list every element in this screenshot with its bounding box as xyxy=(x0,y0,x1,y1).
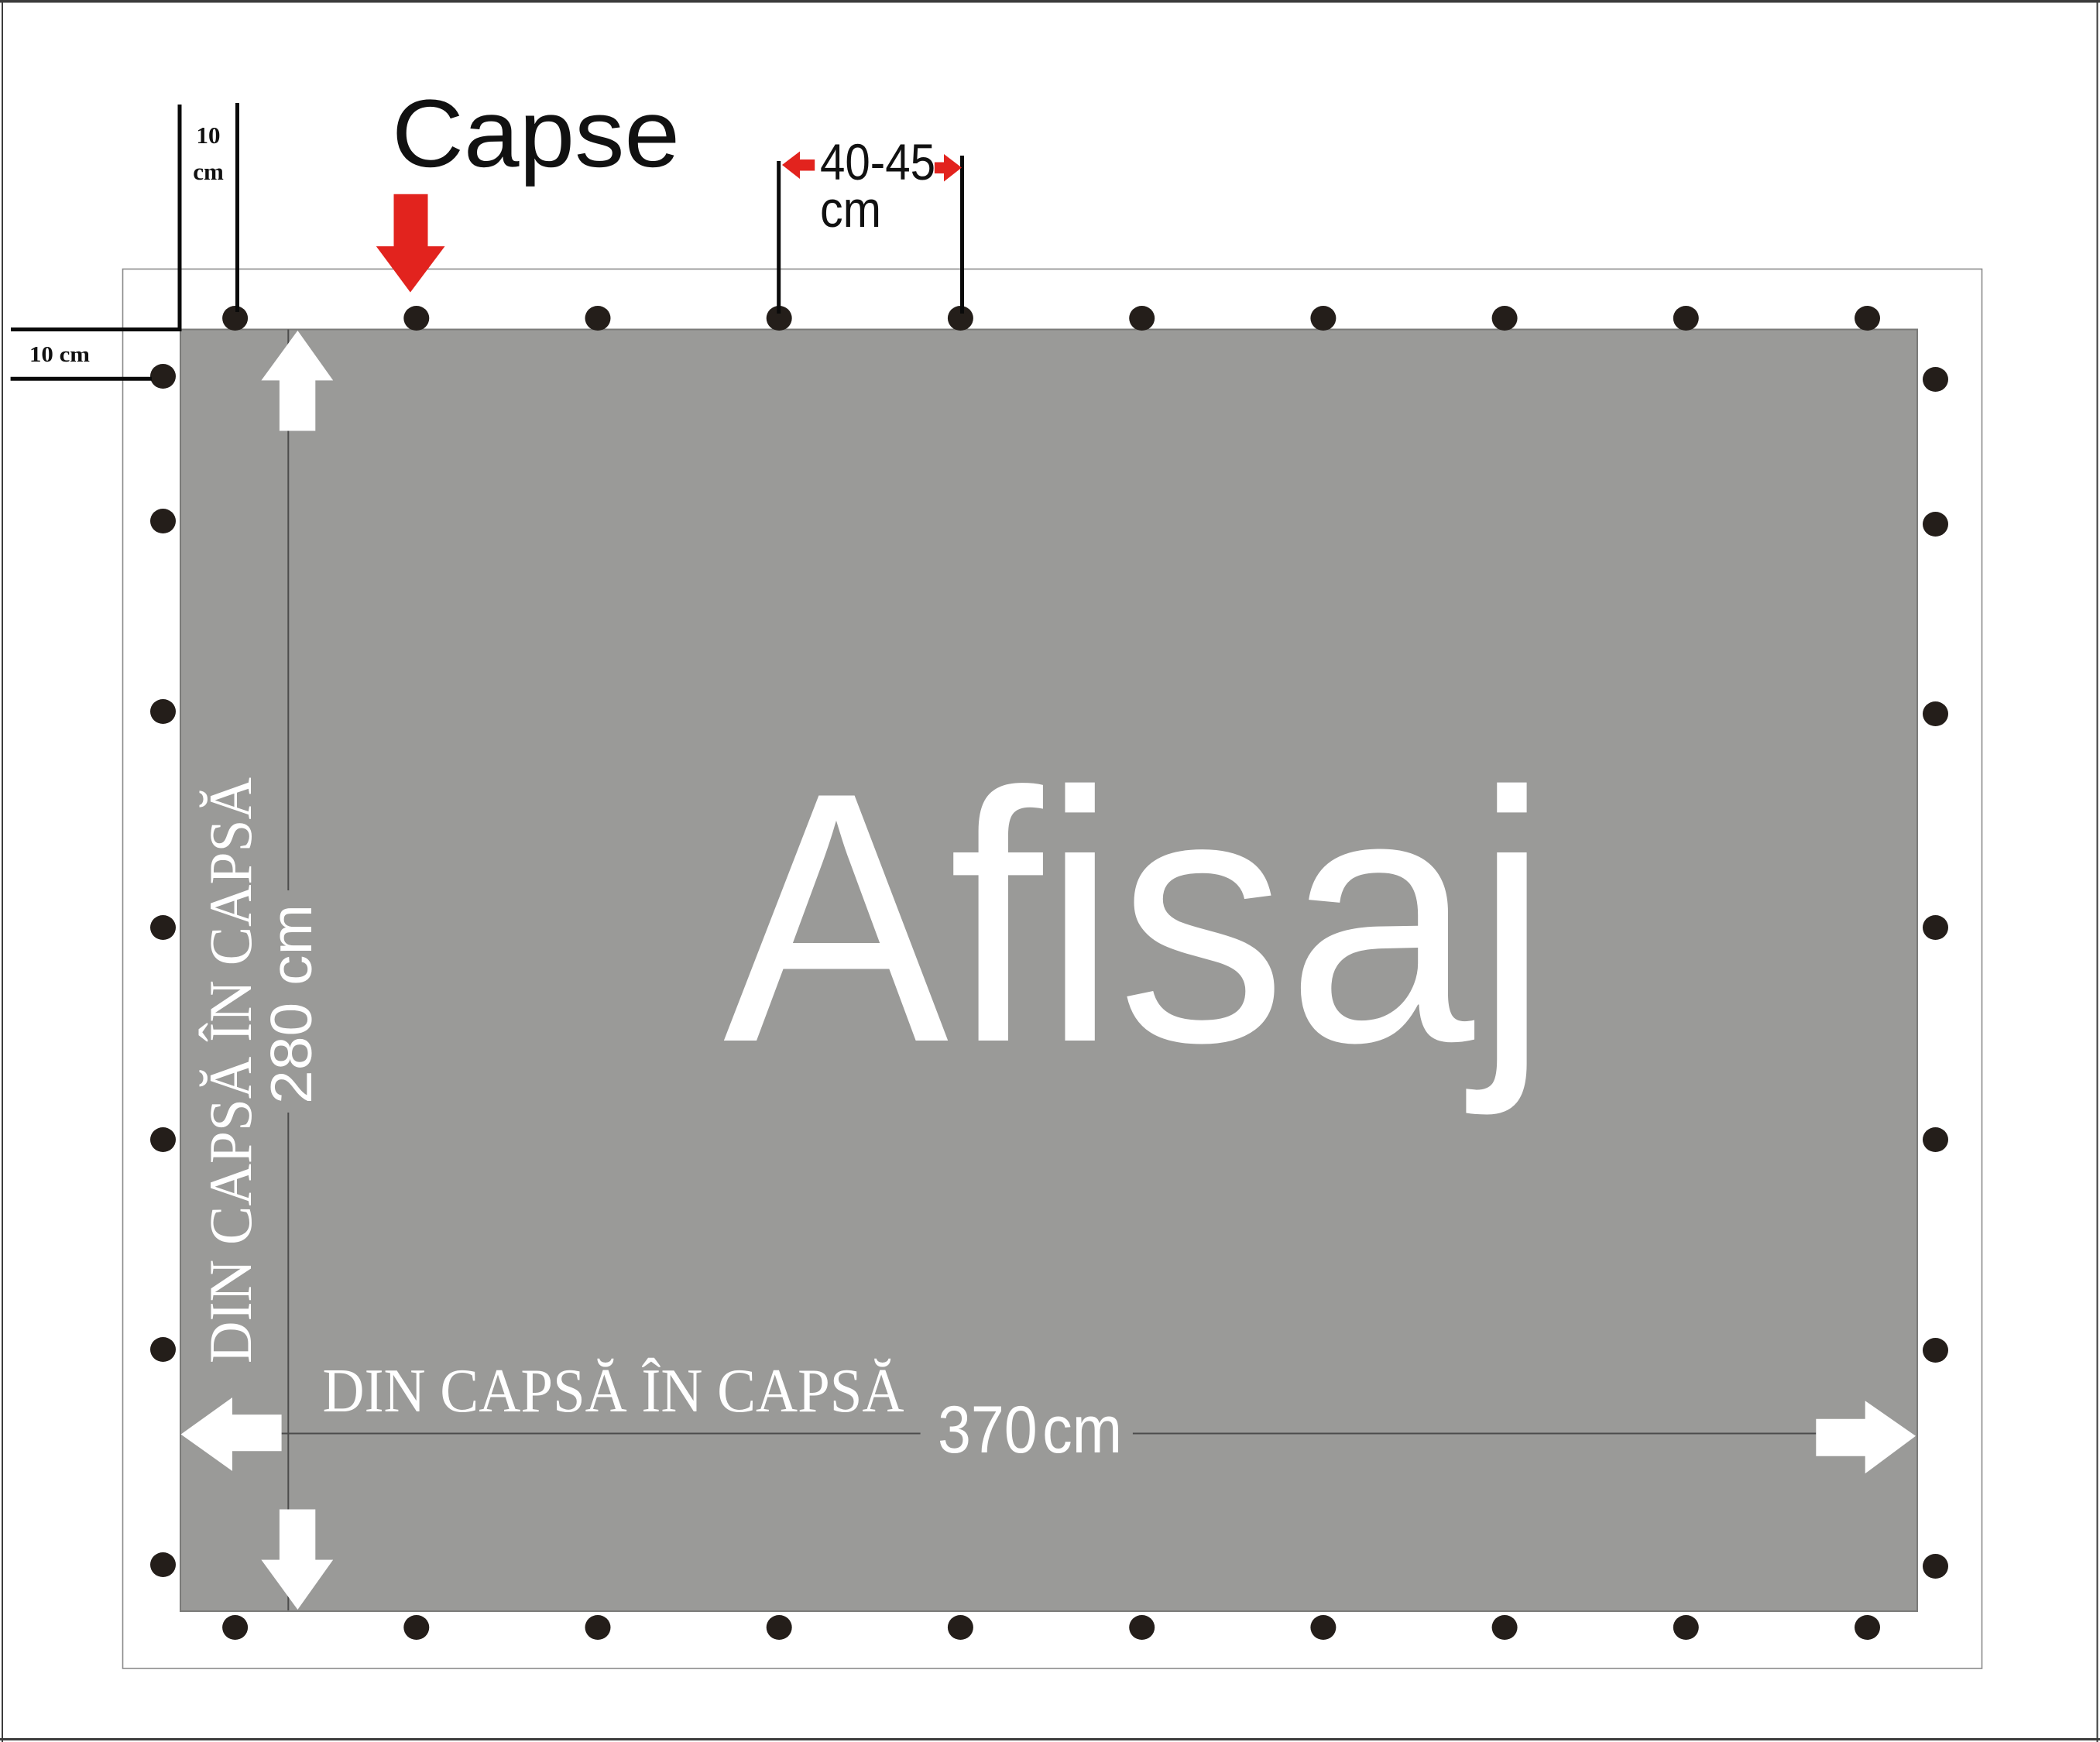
svg-text:280 cm: 280 cm xyxy=(259,904,324,1104)
svg-text:DIN CAPSĂ ÎN CAPSĂ: DIN CAPSĂ ÎN CAPSĂ xyxy=(323,1357,904,1425)
svg-text:370 cm: 370 cm xyxy=(938,1393,1122,1467)
svg-text:Capse: Capse xyxy=(392,81,680,187)
svg-text:cm: cm xyxy=(820,180,881,238)
svg-text:10: 10 xyxy=(197,122,221,149)
svg-text:cm: cm xyxy=(193,158,224,185)
svg-text:DIN CAPSĂ ÎN CAPSĂ: DIN CAPSĂ ÎN CAPSĂ xyxy=(197,777,264,1363)
svg-text:Afisaj: Afisaj xyxy=(723,719,1549,1119)
svg-text:10 cm: 10 cm xyxy=(29,342,90,367)
